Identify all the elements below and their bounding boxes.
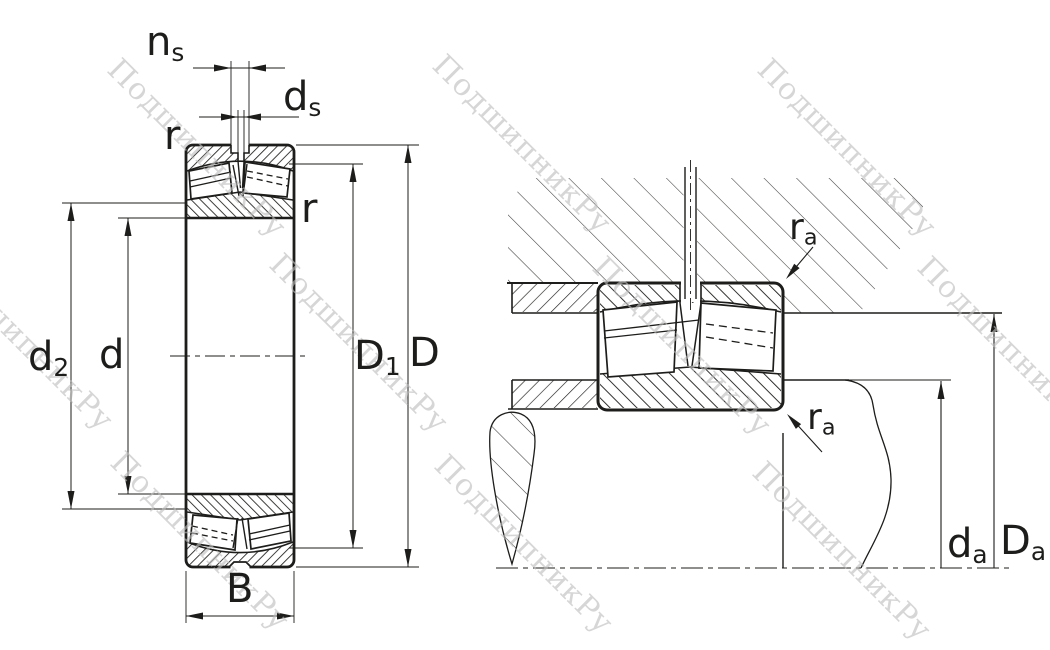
dim-label-D1: D1	[354, 336, 401, 380]
dim-label-ds: ds	[283, 77, 321, 121]
roller-left	[603, 302, 677, 377]
dim-label-r-right: r	[301, 189, 317, 229]
dim-label-ns: ns	[146, 22, 184, 66]
cover-ring-hatch	[512, 284, 597, 312]
sleeve-hatch	[512, 380, 597, 408]
roller-right	[699, 303, 776, 371]
dim-label-B: B	[226, 569, 253, 609]
dim-label-r-left: r	[164, 116, 180, 156]
roller-bottom-right	[248, 513, 291, 549]
dim-label-ra-bottom: ra	[807, 400, 836, 439]
dim-label-Da: Da	[1000, 521, 1046, 565]
mounted-bearing-section-view	[490, 160, 1012, 568]
shaft-shoulder-lobe	[490, 412, 535, 564]
roller-bottom-left	[190, 515, 237, 550]
dim-label-D: D	[409, 333, 440, 373]
dim-label-ra-top: ra	[789, 210, 818, 249]
technical-drawing-canvas: ПодшипникРу ПодшипникРу ПодшипникРу Подш…	[0, 0, 1050, 650]
dim-label-d2: d2	[28, 337, 69, 381]
dim-label-d: d	[99, 335, 124, 375]
dim-label-da: da	[947, 524, 988, 568]
roller-top-right	[243, 162, 290, 197]
bearing-drawing	[0, 0, 1050, 650]
bearing-front-section-view	[170, 142, 310, 569]
